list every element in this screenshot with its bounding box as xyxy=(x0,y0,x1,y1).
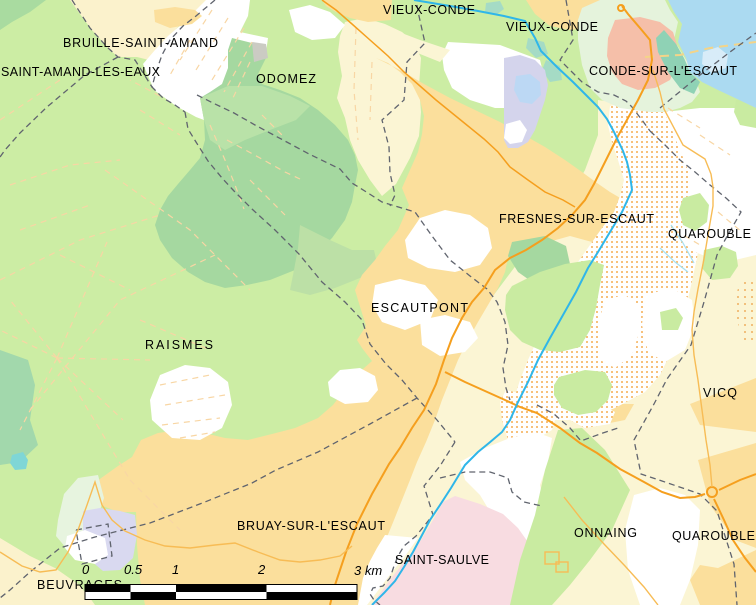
svg-text:2: 2 xyxy=(257,562,266,577)
svg-text:3 km: 3 km xyxy=(354,563,382,578)
svg-text:VICQ: VICQ xyxy=(703,386,737,400)
svg-text:VIEUX-CONDE: VIEUX-CONDE xyxy=(506,20,598,34)
svg-text:BRUILLE-SAINT-AMAND: BRUILLE-SAINT-AMAND xyxy=(63,36,218,50)
svg-text:1: 1 xyxy=(172,562,179,577)
svg-text:QUAROUBLE: QUAROUBLE xyxy=(672,529,755,543)
svg-text:VIEUX-CONDE: VIEUX-CONDE xyxy=(383,3,475,17)
svg-text:ODOMEZ: ODOMEZ xyxy=(256,72,316,86)
svg-text:CONDE-SUR-L'ESCAUT: CONDE-SUR-L'ESCAUT xyxy=(589,64,737,78)
svg-text:0: 0 xyxy=(82,562,90,577)
svg-text:0.5: 0.5 xyxy=(124,562,143,577)
svg-text:BRUAY-SUR-L'ESCAUT: BRUAY-SUR-L'ESCAUT xyxy=(237,519,385,533)
svg-text:FRESNES-SUR-ESCAUT: FRESNES-SUR-ESCAUT xyxy=(499,212,654,226)
svg-text:SAINT-SAULVE: SAINT-SAULVE xyxy=(395,553,489,567)
svg-text:QUAROUBLE: QUAROUBLE xyxy=(668,227,751,241)
svg-text:SAINT-AMAND-LES-EAUX: SAINT-AMAND-LES-EAUX xyxy=(1,65,161,79)
svg-text:ONNAING: ONNAING xyxy=(574,526,637,540)
svg-text:ESCAUTPONT: ESCAUTPONT xyxy=(371,301,468,315)
